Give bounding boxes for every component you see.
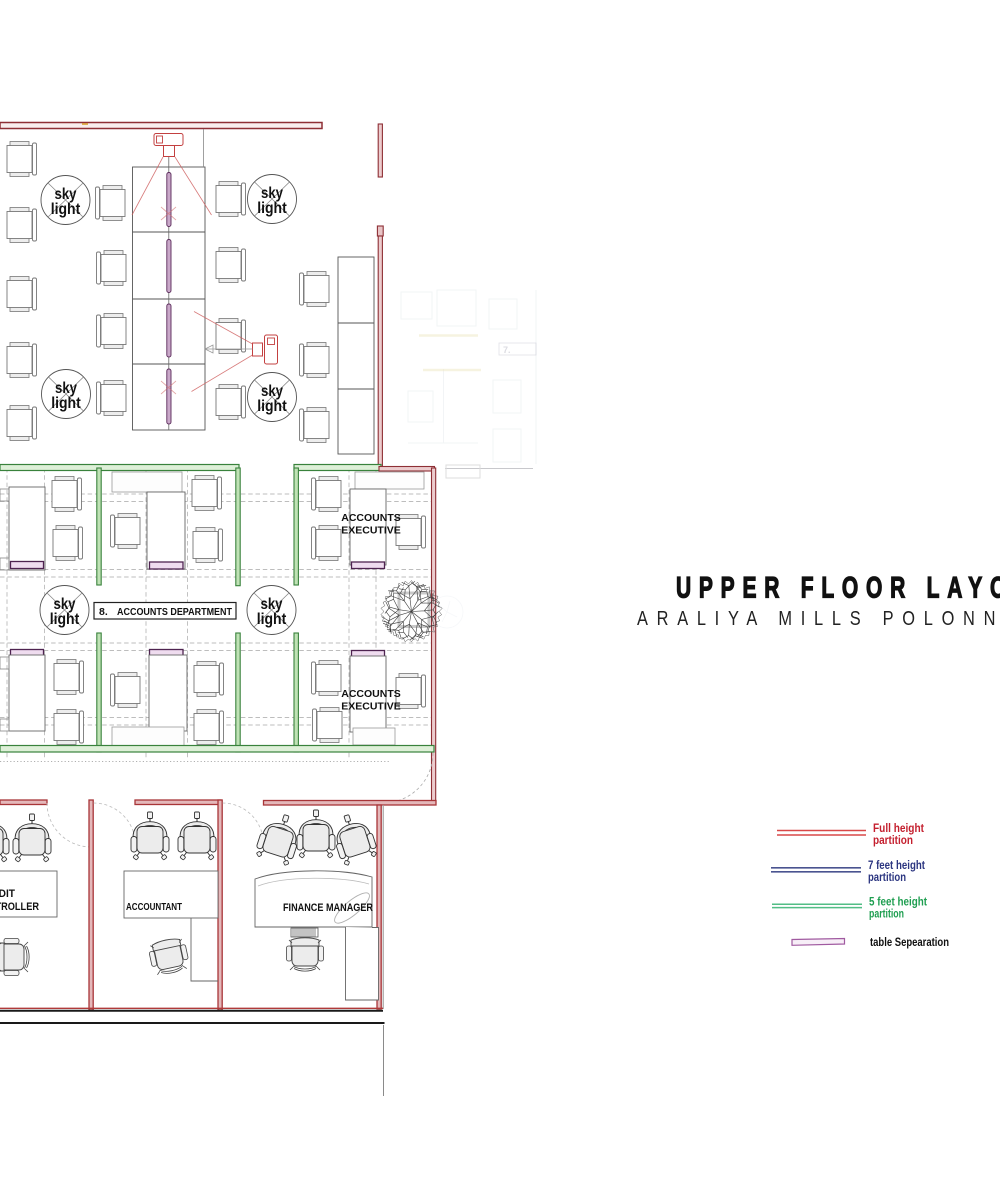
svg-text:partition: partition [869, 909, 904, 921]
svg-text:partition: partition [873, 835, 913, 847]
svg-text:Full height: Full height [873, 823, 924, 835]
svg-text:CONTROLLER: CONTROLLER [0, 901, 39, 913]
svg-text:light: light [51, 201, 81, 218]
svg-text:7 feet height: 7 feet height [868, 860, 925, 872]
svg-text:table Sepearation: table Sepearation [870, 937, 949, 949]
svg-text:light: light [257, 200, 287, 217]
svg-text:EXECUTIVE: EXECUTIVE [341, 701, 401, 713]
svg-text:5 feet height: 5 feet height [869, 897, 927, 909]
svg-text:light: light [257, 611, 287, 628]
svg-text:UPPER FLOOR LAYOUT: UPPER FLOOR LAYOUT [676, 572, 1000, 604]
svg-text:ACCOUNTS: ACCOUNTS [341, 688, 401, 700]
svg-text:partition: partition [868, 872, 906, 884]
svg-text:ACCOUNTS DEPARTMENT: ACCOUNTS DEPARTMENT [117, 606, 232, 618]
svg-text:7.: 7. [503, 345, 511, 355]
svg-text:light: light [51, 395, 81, 412]
svg-text:EXECUTIVE: EXECUTIVE [341, 525, 401, 537]
svg-text:AUDIT: AUDIT [0, 888, 15, 900]
svg-text:ACCOUNTS: ACCOUNTS [341, 512, 401, 524]
svg-text:light: light [50, 611, 80, 628]
svg-text:ACCOUNTANT: ACCOUNTANT [126, 901, 182, 913]
svg-text:FINANCE MANAGER: FINANCE MANAGER [283, 902, 373, 914]
svg-text:light: light [257, 398, 287, 415]
svg-text:8.: 8. [99, 606, 108, 618]
svg-text:ARALIYA MILLS POLONNARUWA: ARALIYA MILLS POLONNARUWA [637, 606, 1000, 629]
